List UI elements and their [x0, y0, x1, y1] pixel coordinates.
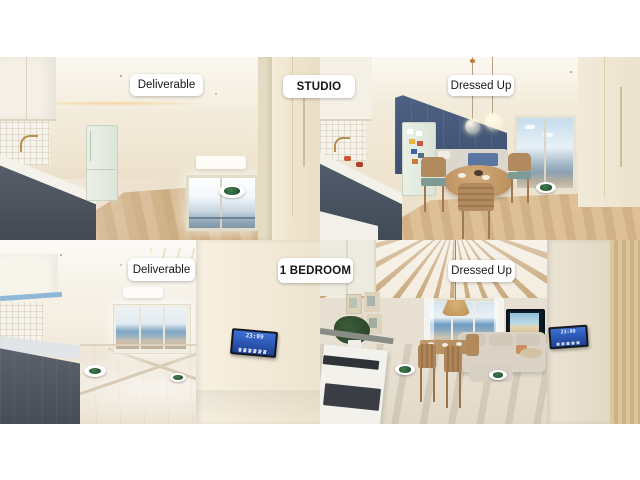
place-settings: [458, 173, 466, 178]
hotspot-marker[interactable]: [395, 364, 415, 375]
window-mullions: [139, 307, 141, 349]
fridge-handle: [90, 131, 91, 161]
label-pill-1br-dressed-up: Dressed Up: [448, 260, 515, 282]
baseboard: [80, 344, 196, 346]
label-pill-studio-dressed-up: Dressed Up: [448, 75, 514, 96]
chair-back: [421, 157, 446, 177]
hotspot-core: [493, 372, 503, 378]
counter-items: [344, 156, 351, 161]
panel-screen: 23:09: [550, 327, 586, 347]
chair-legs: [511, 179, 513, 203]
hotspot-core: [224, 187, 239, 195]
chair-back: [508, 153, 531, 171]
faucet: [334, 137, 350, 152]
wardrobe-handle: [620, 87, 622, 167]
dining-chair-far: [466, 334, 479, 356]
hotspot-marker[interactable]: [536, 182, 556, 193]
balcony-rail: [189, 217, 255, 219]
chair-cushion: [421, 178, 446, 186]
wardrobe-seam: [604, 57, 605, 197]
dining-chair: [444, 346, 462, 372]
label-pill-1br-deliverable: Deliverable: [128, 258, 195, 281]
unit-title-pill-studio: STUDIO: [283, 75, 355, 98]
ceiling-spotlights: [570, 71, 572, 73]
hotspot-marker[interactable]: [489, 370, 507, 380]
pillar-base-shadow: [196, 390, 320, 424]
pouf-table: [520, 348, 542, 358]
cabinet-seam: [26, 57, 27, 119]
hotspot-core: [89, 368, 102, 375]
chair-legs: [420, 368, 422, 402]
table-bowl: [474, 170, 483, 176]
faucet: [20, 135, 38, 152]
fridge-magnets: [407, 129, 413, 134]
chair-front-back: [458, 183, 494, 211]
comparison-board: Deliverable STUDIO Dressed Up Deliverabl…: [0, 0, 640, 480]
fridge-door-split: [87, 169, 115, 170]
hallway-wardrobe: [578, 57, 640, 207]
panel-screen: 23:09: [232, 330, 276, 356]
ceiling-spotlights: [120, 75, 122, 77]
pendant-canopy: [470, 59, 475, 63]
window-mullion: [544, 118, 546, 188]
panel-clock: 23:09: [245, 332, 264, 341]
chair-legs: [424, 186, 426, 212]
ac-unit: [123, 287, 163, 298]
hotspot-core: [399, 366, 411, 372]
panel-buttons: [556, 341, 581, 346]
chair-cushion: [508, 172, 531, 179]
hotspot-core: [540, 184, 552, 190]
panel-buttons: [238, 348, 269, 355]
unit-title-pill-1-bedroom: 1 BEDROOM: [278, 258, 353, 283]
wardrobe-handle: [303, 97, 305, 167]
chair-legs: [462, 211, 464, 239]
upper-cabinets: [0, 254, 58, 296]
panel-clock: 23:09: [560, 328, 575, 335]
dining-chair: [418, 344, 436, 368]
picture-art: [349, 298, 357, 308]
upper-cabinets: [0, 57, 56, 121]
chair-legs: [446, 372, 448, 408]
wall-corner: [258, 57, 272, 240]
pendant-globe: [465, 119, 480, 134]
clouds: [525, 125, 535, 129]
pendant-globe: [485, 113, 502, 130]
wood-slat-panel: [610, 240, 640, 424]
hotspot-marker[interactable]: [84, 365, 106, 377]
wall-control-panel: 23:09: [230, 328, 278, 358]
hotspot-marker[interactable]: [170, 373, 186, 382]
sheer-curtains: [424, 298, 434, 346]
sea-view: [116, 307, 186, 349]
bed-throw: [468, 153, 498, 166]
hotspot-core: [173, 375, 182, 380]
hotspot-marker[interactable]: [219, 184, 245, 198]
label-pill-studio-deliverable: Deliverable: [130, 74, 203, 96]
tv-screen-beach: [510, 313, 539, 332]
wall-control-panel: 23:09: [548, 325, 588, 350]
ceiling-spotlights: [60, 254, 62, 256]
ac-unit: [196, 156, 246, 169]
